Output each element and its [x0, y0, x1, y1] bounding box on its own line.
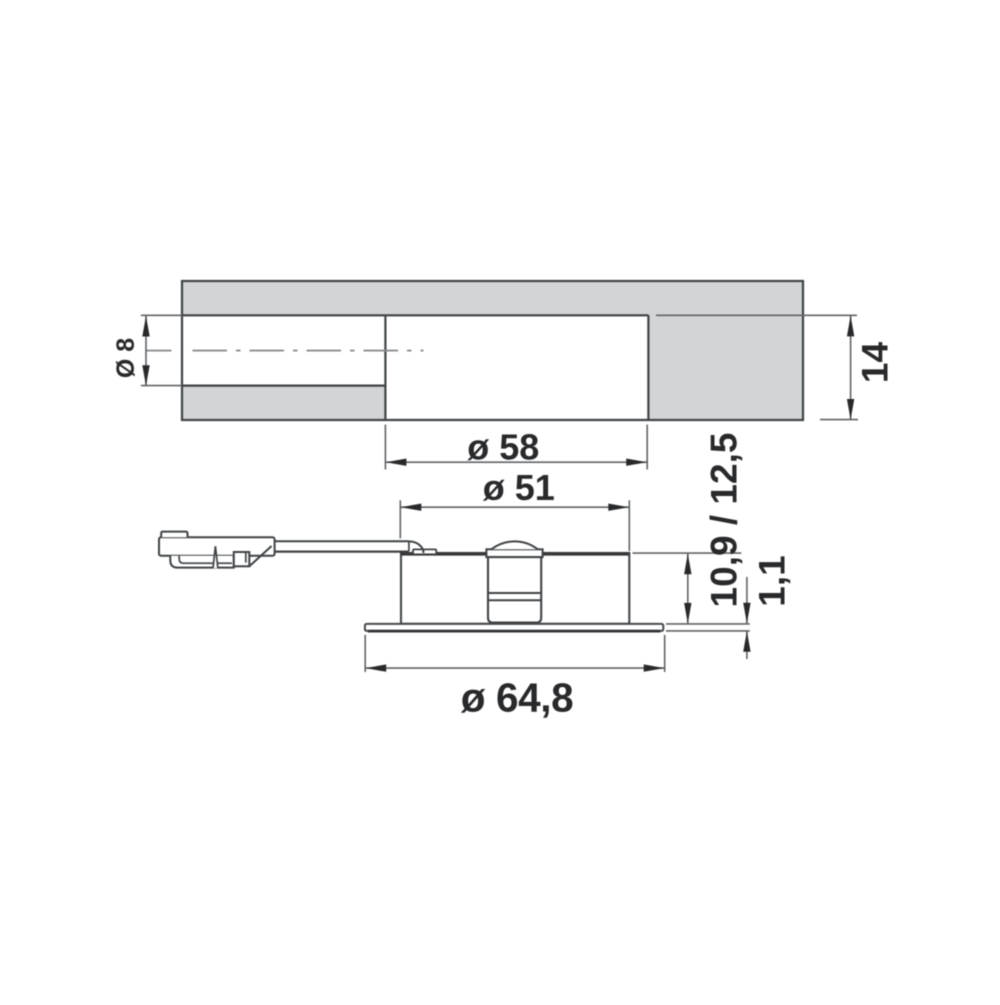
svg-text:ø 64,8: ø 64,8 — [461, 675, 573, 721]
svg-text:ø 51: ø 51 — [483, 467, 555, 508]
svg-text:10,9 / 12,5: 10,9 / 12,5 — [704, 433, 745, 608]
svg-text:14: 14 — [855, 342, 896, 384]
svg-text:1,1: 1,1 — [752, 555, 793, 606]
svg-text:Ø 8: Ø 8 — [112, 338, 140, 378]
svg-text:ø 58: ø 58 — [467, 426, 539, 467]
